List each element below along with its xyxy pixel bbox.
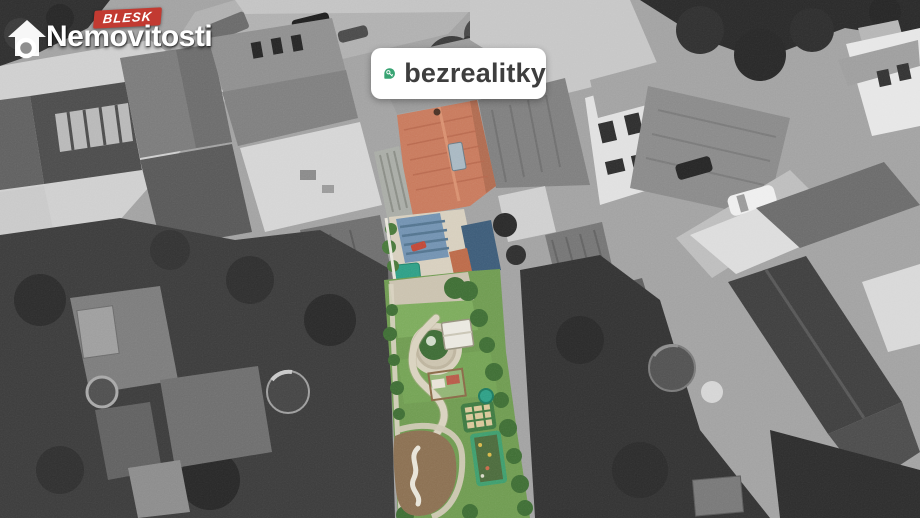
blesk-nemovitosti-logo: BLESK Nemovitosti <box>4 4 219 62</box>
bezrealitky-label: bezrealitky <box>404 58 546 89</box>
key-pin-icon <box>384 55 395 92</box>
bezrealitky-badge: bezrealitky <box>371 48 546 99</box>
blesk-brand-name: Nemovitosti <box>46 20 212 53</box>
listing-aerial-photo: BLESK Nemovitosti bezrealitky <box>0 0 920 518</box>
house-search-icon <box>6 18 48 62</box>
